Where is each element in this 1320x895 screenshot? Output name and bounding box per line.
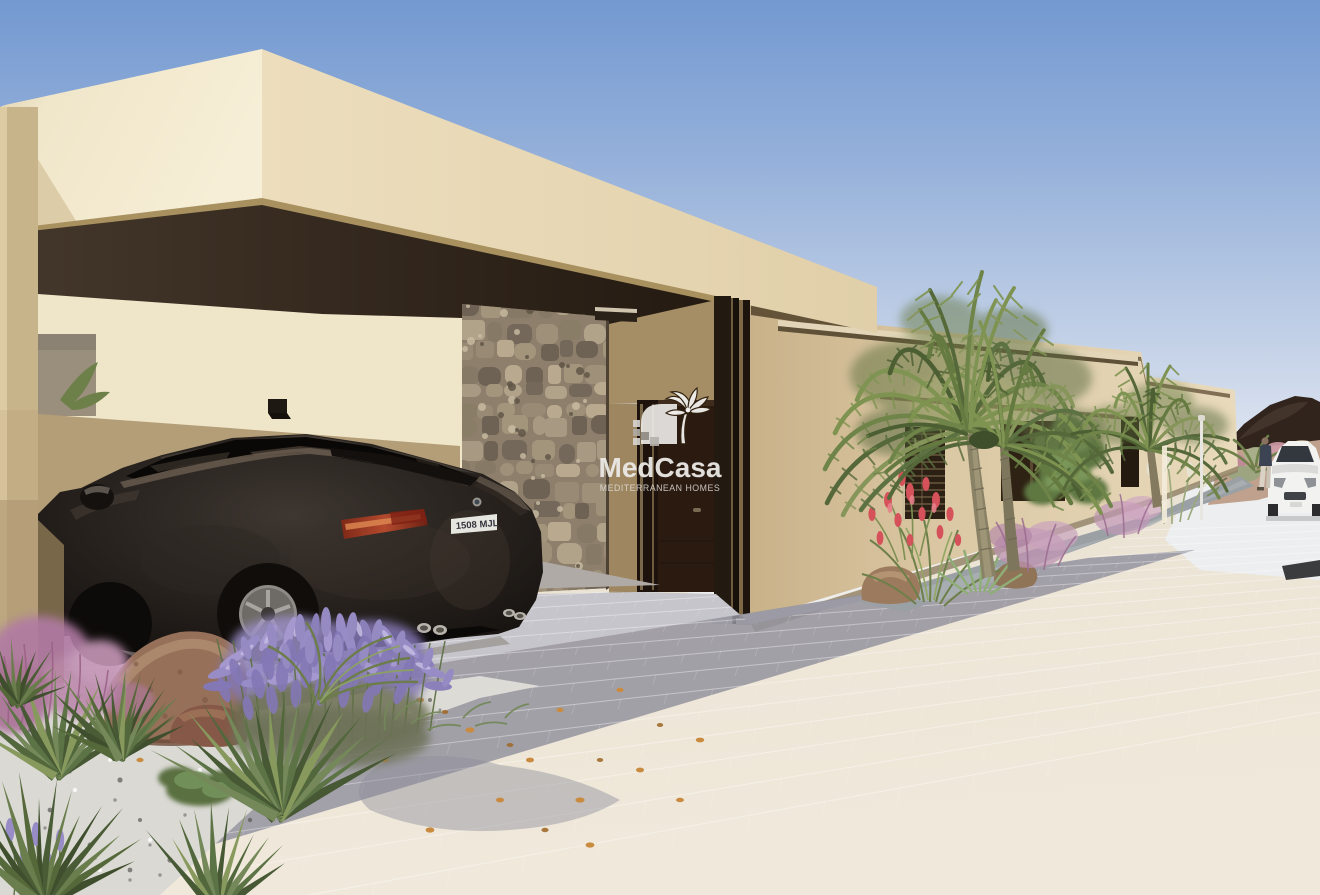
svg-text:MEDITERRANEAN HOMES: MEDITERRANEAN HOMES (600, 483, 720, 493)
svg-text:MedCasa: MedCasa (599, 452, 722, 483)
